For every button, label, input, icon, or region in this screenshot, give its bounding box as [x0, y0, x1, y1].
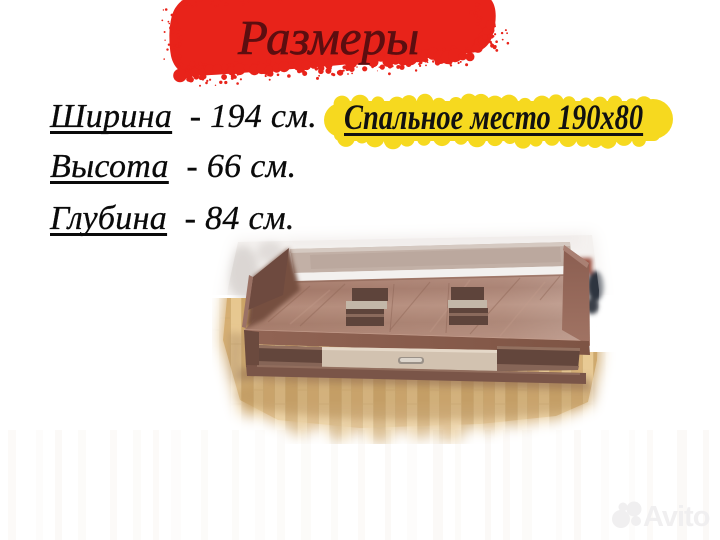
- svg-text:Avito: Avito: [643, 501, 710, 533]
